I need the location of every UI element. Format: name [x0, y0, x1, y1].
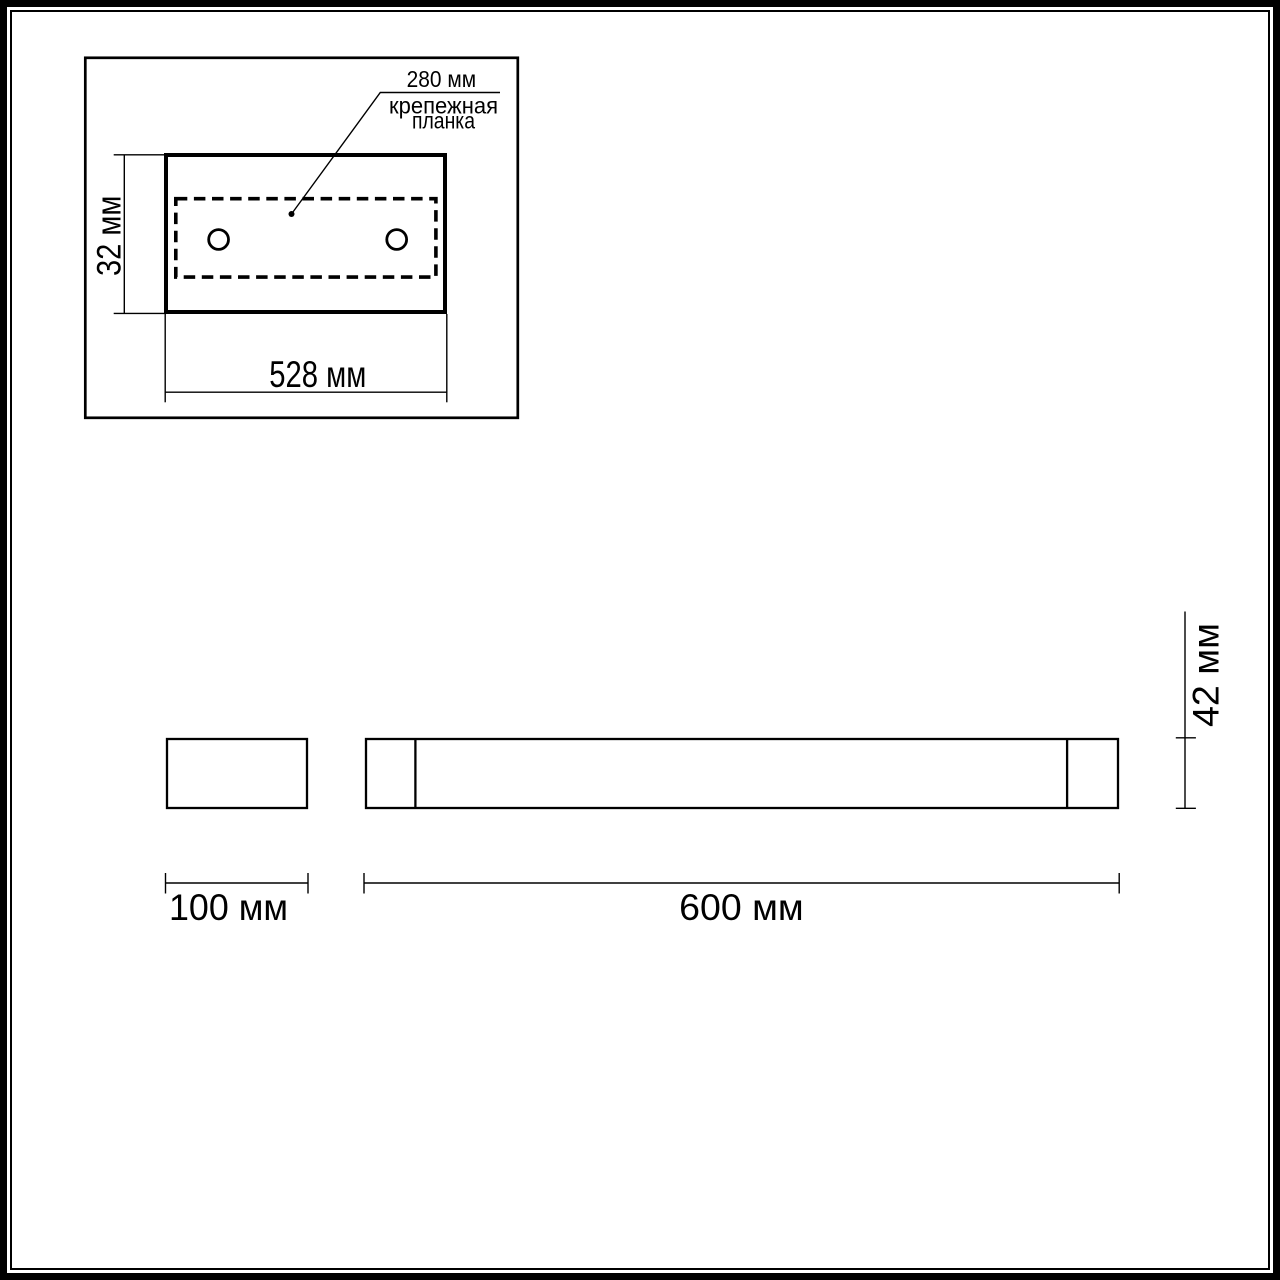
svg-text:планка: планка	[412, 107, 475, 133]
svg-text:600 мм: 600 мм	[679, 887, 804, 928]
svg-text:528 мм: 528 мм	[269, 354, 366, 395]
svg-text:32 мм: 32 мм	[91, 196, 129, 276]
svg-text:42 мм: 42 мм	[1185, 623, 1226, 727]
svg-text:280 мм: 280 мм	[407, 66, 477, 92]
svg-text:100 мм: 100 мм	[169, 887, 288, 928]
